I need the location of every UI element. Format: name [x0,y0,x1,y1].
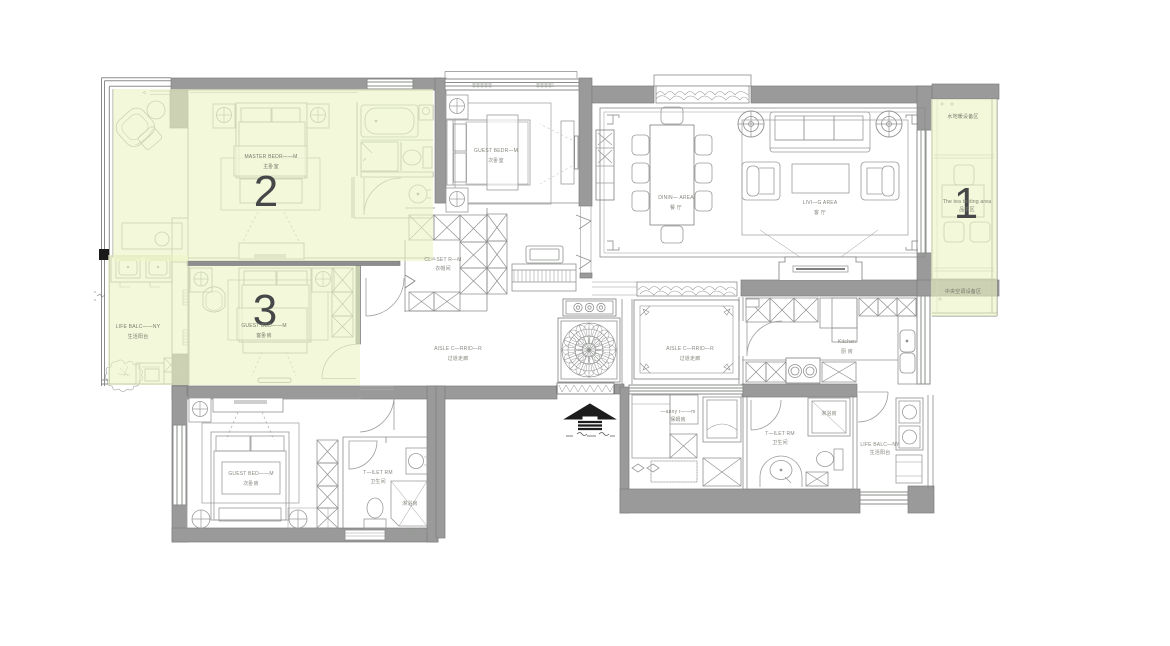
svg-text:GUEST BEDR⁓M: GUEST BEDR⁓M [474,148,518,154]
svg-text:生活阳台: 生活阳台 [870,449,891,456]
svg-text:餐 厅: 餐 厅 [670,204,682,211]
svg-text:淋浴房: 淋浴房 [821,410,837,417]
svg-text:LIFE BALC⁓NY: LIFE BALC⁓NY [860,442,900,448]
svg-text:T⁓ILET RM: T⁓ILET RM [363,470,393,476]
svg-text:T⁓ILET RM: T⁓ILET RM [765,431,795,437]
svg-text:AISLE C⁓RRID⁓R: AISLE C⁓RRID⁓R [666,346,714,352]
svg-text:⁓anny r⁓⁓m: ⁓anny r⁓⁓m [660,409,695,415]
svg-text:The tea tasting area: The tea tasting area [943,199,991,205]
svg-text:生活阳台: 生活阳台 [128,333,149,340]
svg-text:AISLE C⁓RRID⁓R: AISLE C⁓RRID⁓R [434,346,482,352]
svg-text:水地暖设备区: 水地暖设备区 [947,113,978,120]
svg-text:GUEST BED⁓⁓M: GUEST BED⁓⁓M [241,323,286,329]
svg-text:过道走廊: 过道走廊 [680,355,701,362]
svg-text:次卧室: 次卧室 [488,157,504,164]
svg-text:Kitchen: Kitchen [838,339,856,345]
svg-text:LIVI⁓G AREA: LIVI⁓G AREA [803,200,838,206]
svg-text:客卧房: 客卧房 [256,332,272,339]
svg-text:CL⁓SET R⁓M: CL⁓SET R⁓M [424,257,461,263]
svg-text:中央空调设备区: 中央空调设备区 [945,288,981,295]
svg-text:过道走廊: 过道走廊 [448,355,469,362]
svg-text:淋浴房: 淋浴房 [402,500,418,507]
svg-text:MASTER BEDR⁓⁓M: MASTER BEDR⁓⁓M [244,154,297,160]
svg-text:主卧室: 主卧室 [263,163,279,170]
svg-text:次卧房: 次卧房 [243,480,259,487]
svg-text:卫生间: 卫生间 [370,478,386,485]
svg-text:DININ⁓ AREA: DININ⁓ AREA [658,195,694,201]
svg-text:厨 房: 厨 房 [841,348,853,355]
svg-text:衣帽间: 衣帽间 [435,265,451,272]
svg-text:卫生间: 卫生间 [772,439,788,446]
svg-text:品茶区: 品茶区 [959,206,975,213]
svg-text:2: 2 [254,167,278,216]
svg-text:客 厅: 客 厅 [814,209,826,216]
svg-text:GUEST BED⁓⁓M: GUEST BED⁓⁓M [228,471,273,477]
svg-text:保姆房: 保姆房 [670,416,686,423]
svg-text:LIFE BALC⁓⁓NY: LIFE BALC⁓⁓NY [116,324,161,330]
